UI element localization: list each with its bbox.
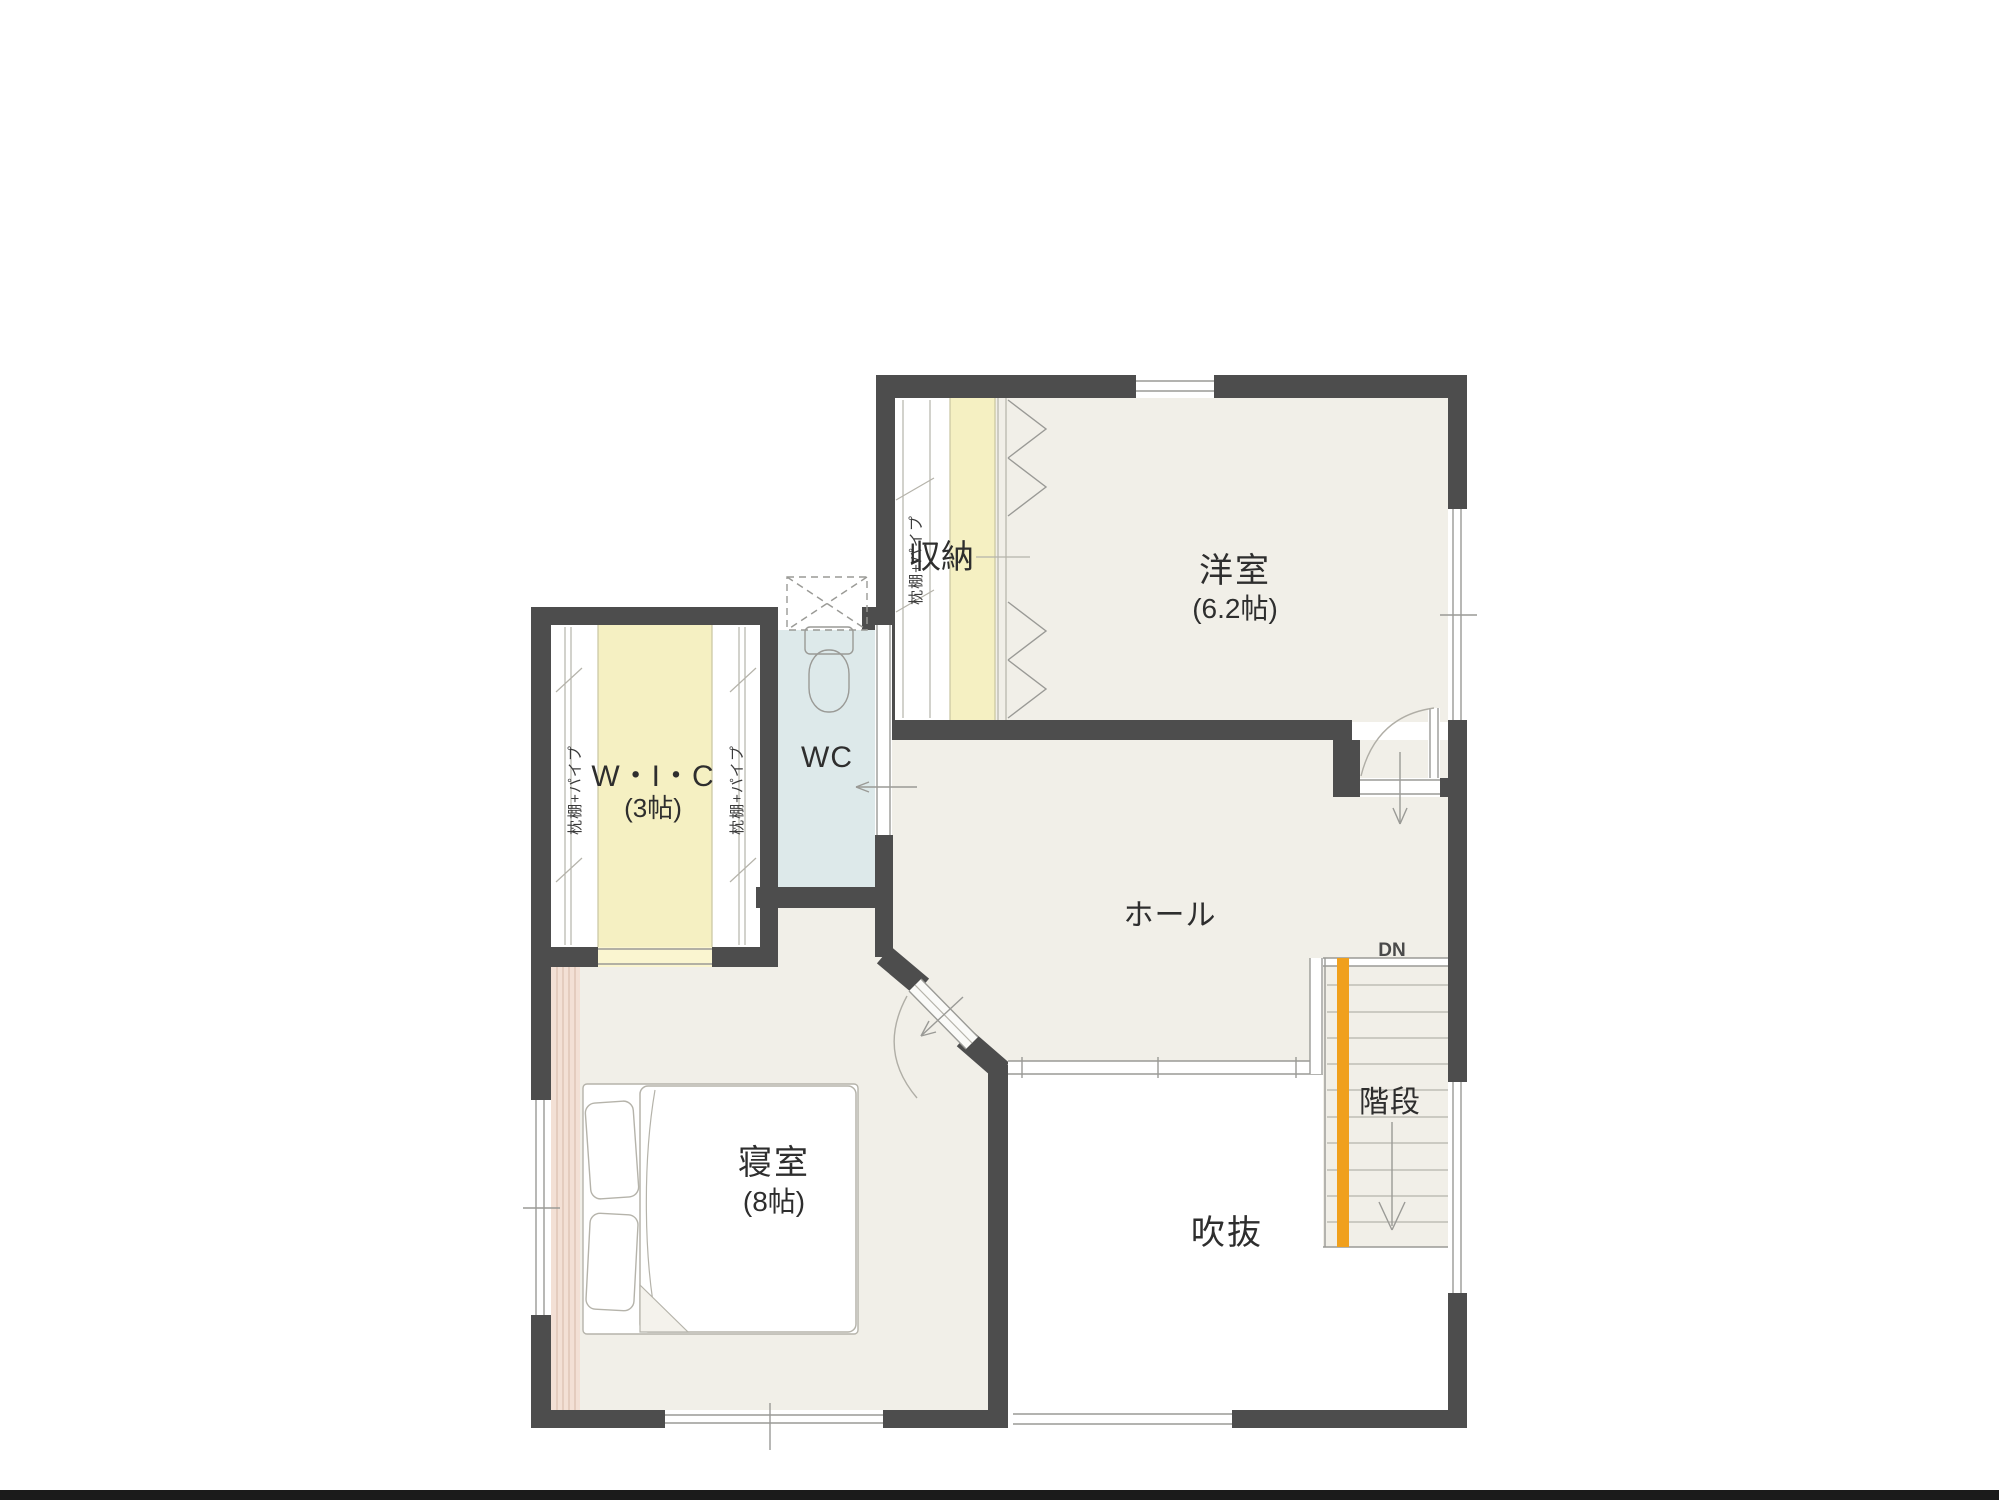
wall-top-left [876, 375, 1136, 398]
storage-shelf-note: 枕棚+パイプ [908, 515, 925, 605]
wic-size: (3帖) [624, 793, 682, 823]
wic-shelf-note-left: 枕棚+パイプ [567, 745, 584, 835]
pillow [586, 1213, 639, 1311]
wall-right-b [1448, 720, 1467, 1082]
wall-westernroom-bottom [876, 720, 1352, 740]
void-label: 吹抜 [1191, 1214, 1263, 1252]
stair-handrail-orange [1337, 958, 1349, 1247]
wall-bottom-c [1232, 1410, 1467, 1428]
window-stairwell-right [1448, 1082, 1467, 1293]
bed [583, 1084, 858, 1334]
stairs-dn-label: DN [1378, 940, 1405, 961]
wall-wic-top [531, 607, 778, 625]
wall-right-c [1448, 1293, 1467, 1428]
wall-top-right [1214, 375, 1467, 398]
wall-bedroom-top-b [712, 947, 778, 967]
wall-bedroom-right [988, 1065, 1008, 1410]
wall-right-a [1448, 398, 1467, 509]
wall-wc-bottom [756, 887, 893, 908]
wic-entry-opening [598, 947, 712, 967]
window-top [1136, 375, 1214, 398]
bedroom-label: 寝室 [738, 1144, 810, 1182]
floor-plan-drawing: 洋室 (6.2帖) 収納 枕棚+パイプ W・I・C (3帖) 枕棚+パイプ 枕棚… [0, 0, 1999, 1500]
page-footer-rule [0, 1490, 1999, 1500]
wall-hinge-stub [1440, 778, 1467, 797]
bedroom-accent-strip [551, 967, 580, 1410]
wall-wic-right [760, 625, 778, 967]
overhead-hatch-box [787, 577, 867, 630]
wall-bottom-a [531, 1410, 665, 1428]
wall-left-upper [531, 607, 551, 1100]
window-bedroom-bottom [665, 1403, 883, 1450]
wc-label: WC [801, 741, 853, 774]
western-room-size: (6.2帖) [1192, 593, 1278, 624]
bedroom-size: (8帖) [743, 1186, 805, 1217]
western-room-label: 洋室 [1199, 552, 1271, 590]
pillow [585, 1100, 640, 1199]
floor-plan-page: 洋室 (6.2帖) 収納 枕棚+パイプ W・I・C (3帖) 枕棚+パイプ 枕棚… [0, 0, 1999, 1500]
wic-shelf-note-right: 枕棚+パイプ [729, 745, 746, 835]
wall-door-stub [1333, 740, 1360, 797]
wic-label: W・I・C [591, 760, 714, 793]
window-void-bottom [1013, 1410, 1232, 1428]
wall-bottom-b [883, 1410, 1008, 1428]
stairs-label: 階段 [1359, 1086, 1421, 1119]
wall-bedroom-top-a [531, 947, 598, 967]
hall-label: ホール [1124, 899, 1217, 932]
wall-wc-right-stub [875, 835, 893, 957]
